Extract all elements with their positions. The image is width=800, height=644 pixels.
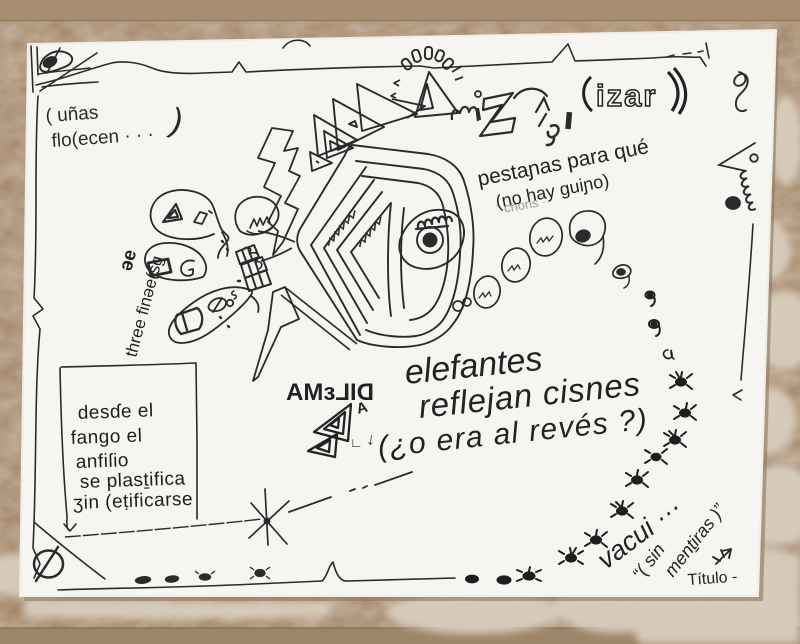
- svg-text:desɗe el: desɗe el: [77, 400, 154, 424]
- svg-text:∟: ∟: [350, 435, 363, 450]
- svg-text:( uñas: ( uñas: [45, 102, 99, 127]
- svg-text:ʒin (eṭificarse: ʒin (eṭificarse: [72, 489, 193, 514]
- svg-text:Título -: Título -: [687, 569, 738, 589]
- svg-text:fango el: fango el: [70, 426, 142, 449]
- svg-text:izar: izar: [596, 78, 657, 113]
